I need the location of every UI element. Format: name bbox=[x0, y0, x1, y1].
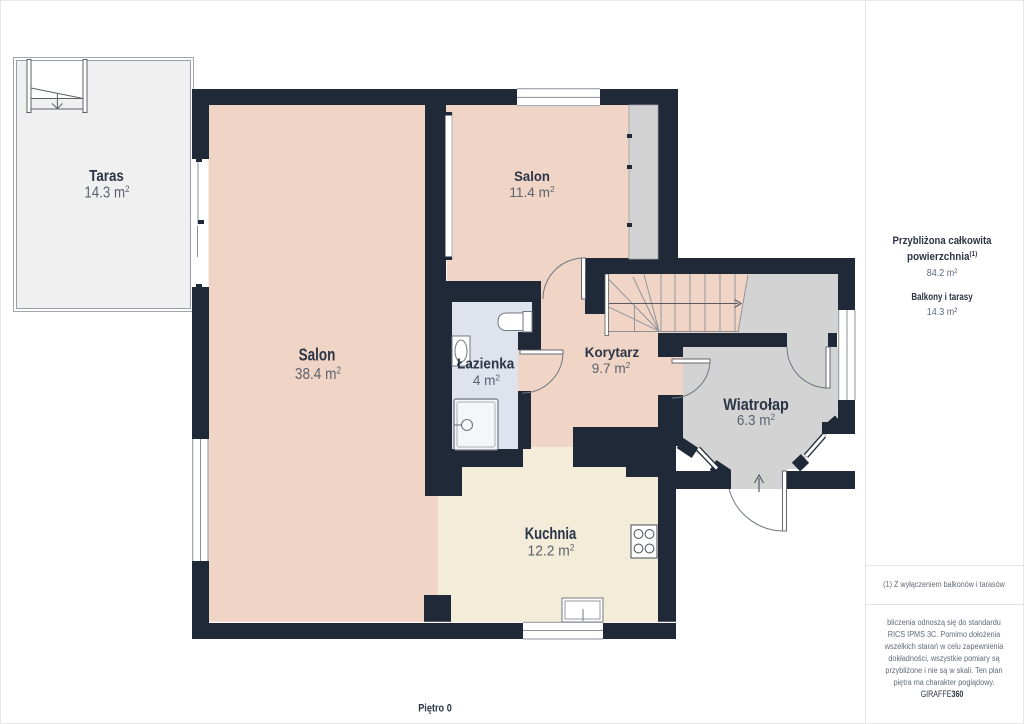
svg-text:12.2 m2: 12.2 m2 bbox=[528, 542, 575, 560]
svg-text:Korytarz: Korytarz bbox=[585, 345, 640, 360]
svg-text:Salon: Salon bbox=[299, 346, 336, 365]
svg-text:Łazienka: Łazienka bbox=[457, 356, 515, 373]
svg-text:11.4 m2: 11.4 m2 bbox=[509, 184, 555, 200]
svg-text:Piętro 0: Piętro 0 bbox=[418, 703, 452, 715]
svg-text:38.4 m2: 38.4 m2 bbox=[295, 365, 341, 384]
svg-text:Taras: Taras bbox=[89, 168, 124, 185]
svg-text:Salon: Salon bbox=[514, 169, 550, 184]
svg-text:Kuchnia: Kuchnia bbox=[525, 526, 577, 544]
svg-text:14.3 m2: 14.3 m2 bbox=[84, 184, 129, 202]
svg-text:9.7 m2: 9.7 m2 bbox=[592, 360, 631, 376]
svg-text:6.3 m2: 6.3 m2 bbox=[737, 411, 775, 429]
